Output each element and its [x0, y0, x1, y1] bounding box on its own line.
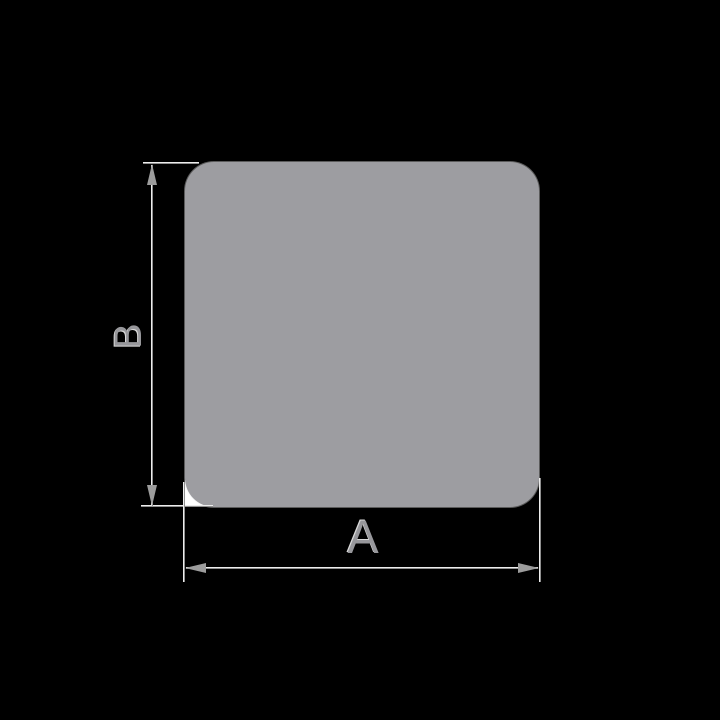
arrow-up-icon	[147, 164, 157, 185]
extension-line-right	[539, 478, 541, 582]
dimension-label-a: A	[323, 513, 403, 561]
dimension-line-horizontal	[186, 567, 538, 569]
arrow-down-icon	[147, 485, 157, 506]
diagram-canvas: B A	[0, 0, 720, 720]
profile-shape	[185, 162, 539, 507]
arrow-right-icon	[518, 563, 539, 573]
dimension-label-b: B	[99, 306, 159, 366]
arrow-left-icon	[185, 563, 206, 573]
